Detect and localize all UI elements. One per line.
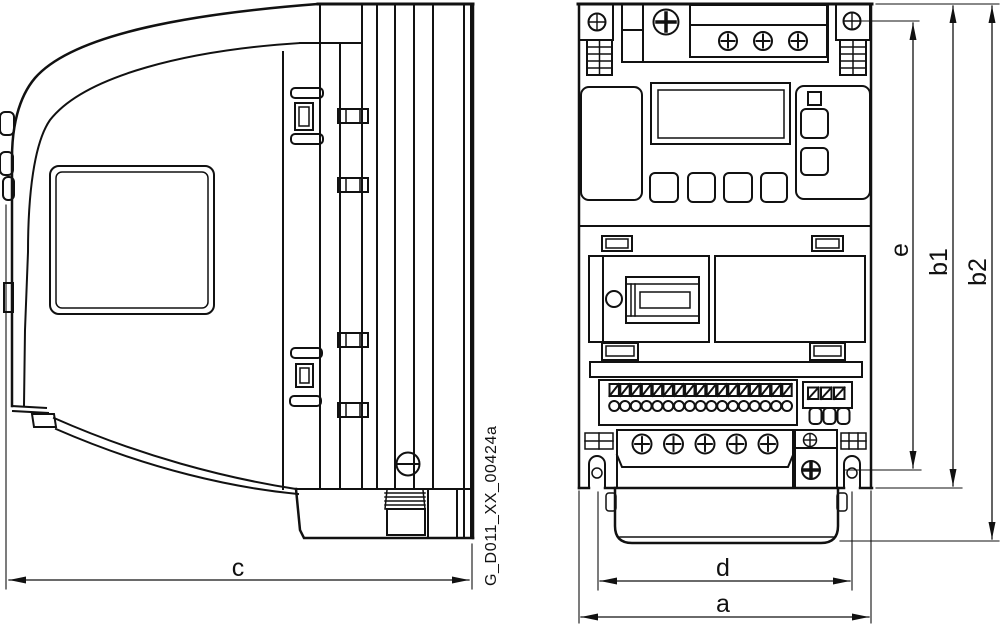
- io-section: [589, 236, 865, 425]
- gland-box: [296, 489, 473, 538]
- dim-label-c: c: [232, 554, 245, 582]
- hinge-tab: [0, 112, 14, 135]
- mounting-slot-left: [589, 456, 605, 488]
- power-screws: [633, 435, 778, 454]
- release-hole-icon: [606, 291, 622, 307]
- io-cover-bar: [590, 362, 862, 377]
- line-screws: [719, 32, 807, 50]
- side-outer-profile: [12, 4, 318, 406]
- keypad-button: [688, 173, 715, 202]
- status-led: [808, 92, 821, 105]
- access-door: [50, 166, 214, 314]
- lcd-display: [651, 83, 790, 144]
- keypad-button: [801, 109, 828, 138]
- earth-screw-icon: [654, 10, 679, 35]
- mounting-slot-right: [844, 456, 860, 488]
- side-cover-seam: [24, 43, 300, 405]
- mount-screw-top-left-icon: [589, 14, 606, 31]
- keypad-button: [650, 173, 678, 202]
- heatsink-grille-left: [587, 40, 612, 75]
- keypad-button: [801, 148, 828, 175]
- heatsink-fins: [320, 4, 473, 538]
- dim-label-b2: b2: [964, 258, 992, 286]
- dim-label-a: a: [716, 590, 730, 618]
- panel-latches: [290, 88, 323, 406]
- vent-grid-right: [841, 433, 866, 449]
- slotted-screw-icon: [397, 453, 420, 476]
- part-number: G_D011_XX_00424a: [483, 425, 500, 586]
- line-terminal-box: [622, 4, 828, 62]
- keypad-button: [724, 173, 752, 202]
- side-view: [0, 4, 473, 538]
- dim-label-d: d: [716, 554, 730, 582]
- bottom-cover: [606, 488, 847, 543]
- earth-screw-bottom-icon: [802, 461, 820, 479]
- front-view: [578, 4, 872, 543]
- vent-grid-left: [585, 433, 613, 449]
- mounting-clips: [338, 109, 368, 417]
- technical-drawing: c d a e b1 b2 G_D011_XX_00424a: [0, 0, 1000, 624]
- operator-panel: [579, 83, 871, 226]
- power-terminal-section: [585, 430, 866, 488]
- option-bay-right: [715, 256, 865, 342]
- cable-gland-icon: [385, 490, 425, 535]
- heatsink-grille-right: [840, 40, 866, 75]
- left-blank-panel: [581, 87, 642, 200]
- small-screw-icon: [804, 434, 817, 447]
- option-module: [626, 277, 699, 323]
- keypad-button: [761, 173, 787, 202]
- dim-label-b1: b1: [925, 248, 953, 276]
- relay-terminals: [808, 388, 850, 425]
- dim-label-e: e: [886, 243, 914, 257]
- io-terminals: [609, 384, 792, 411]
